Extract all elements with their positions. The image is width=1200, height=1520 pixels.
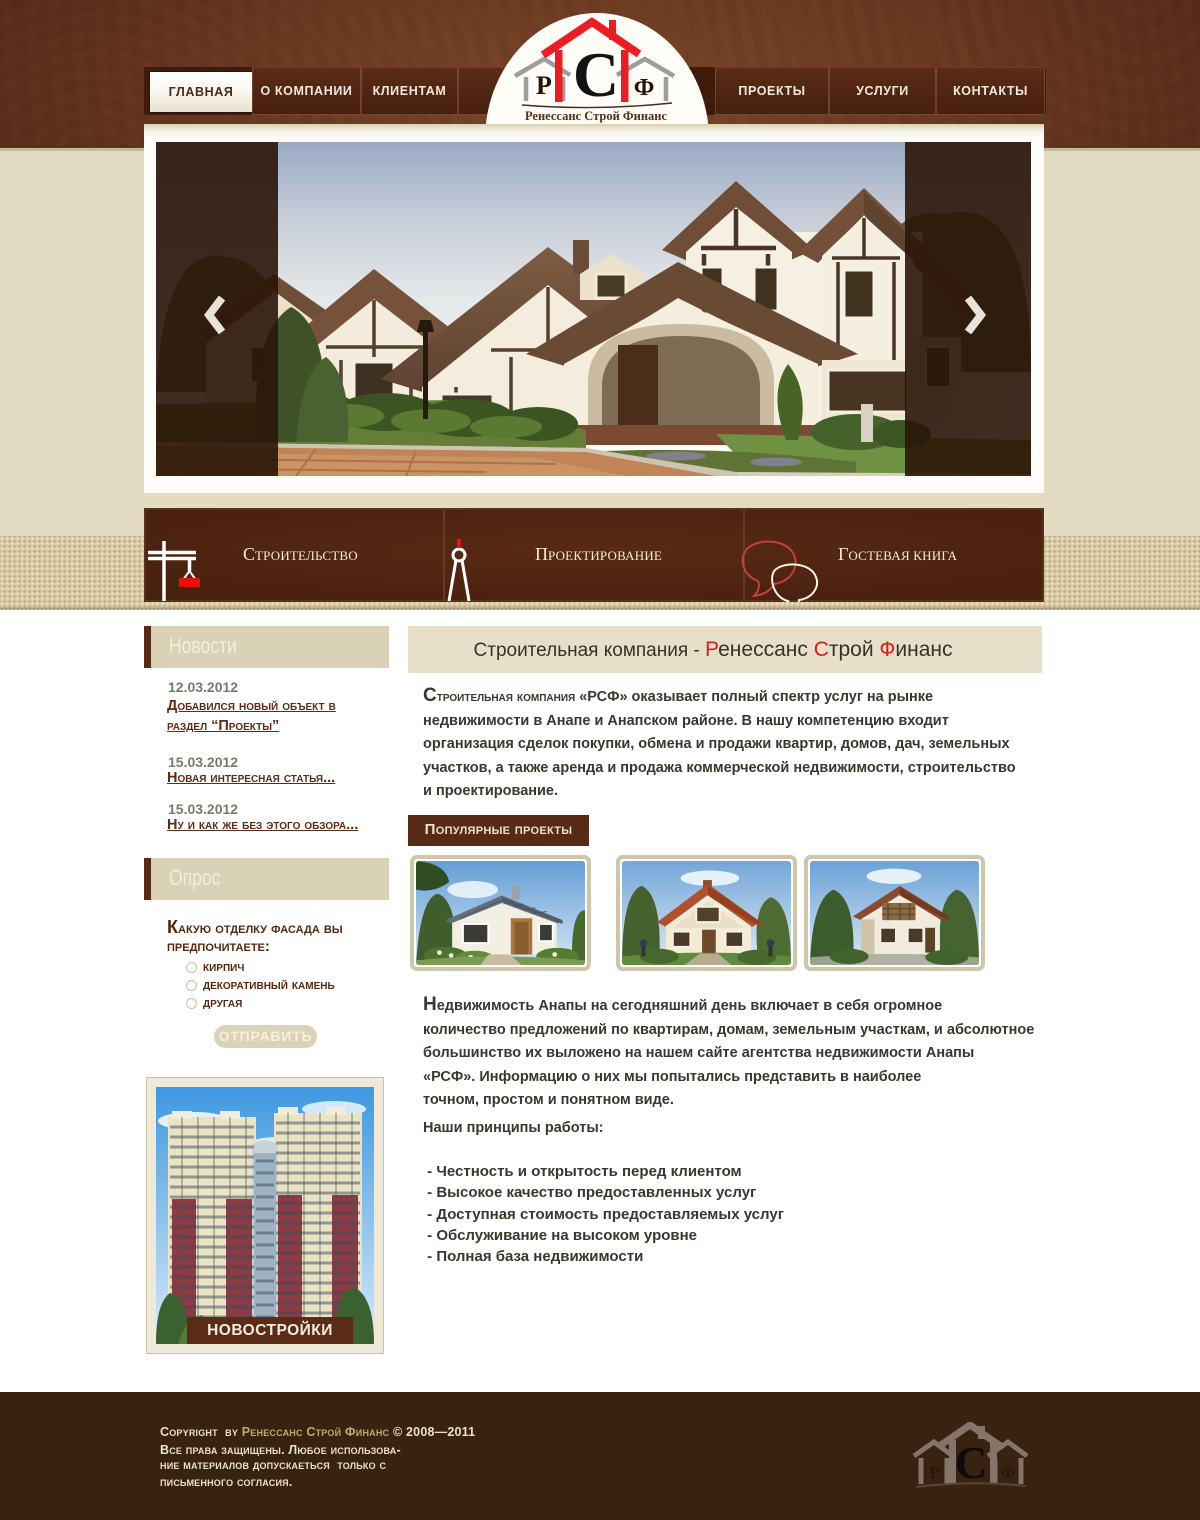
svg-text:Ф: Ф [634,75,655,101]
svg-text:Р: Р [930,1463,940,1482]
svg-text:С: С [573,39,619,110]
svg-text:С: С [955,1438,988,1488]
svg-text:Ф: Ф [1001,1465,1015,1482]
svg-text:Р: Р [536,71,552,100]
svg-text:Ренессанс Строй Финанс: Ренессанс Строй Финанс [525,109,668,123]
